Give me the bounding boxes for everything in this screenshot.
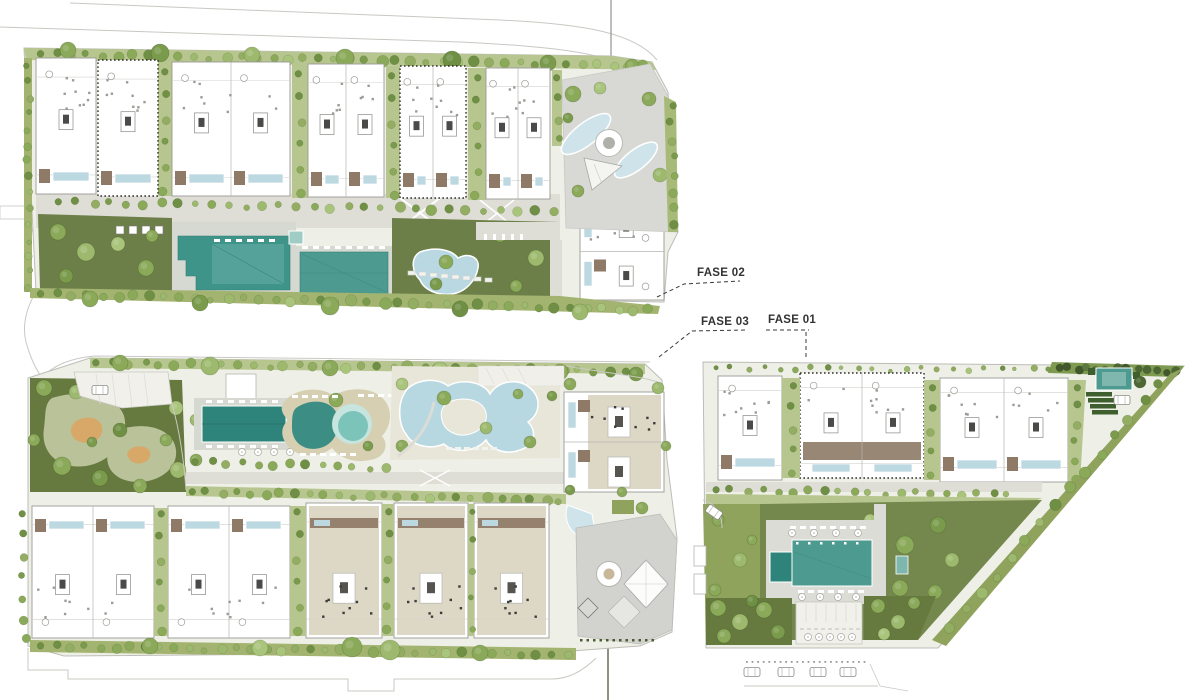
- plan-shape: [441, 399, 486, 435]
- terrace-box: [101, 171, 112, 185]
- furniture-dot: [412, 99, 414, 101]
- tree-icon: [292, 203, 301, 212]
- deck-item: [768, 661, 770, 663]
- tree-icon: [468, 595, 473, 600]
- tree-icon: [54, 289, 62, 297]
- stepping-stone: [430, 273, 437, 277]
- table-icon: [351, 77, 358, 84]
- furniture-dot: [416, 86, 418, 88]
- tree-icon: [788, 470, 795, 477]
- hedge: [1092, 410, 1118, 415]
- stepping-stone: [419, 272, 426, 276]
- tree-icon: [71, 197, 79, 205]
- tree-icon: [1143, 366, 1151, 374]
- tree-icon: [556, 135, 562, 141]
- lounger: [250, 445, 256, 448]
- tree-icon: [208, 200, 216, 208]
- deck-item: [828, 628, 832, 630]
- umbrella-icon: [819, 596, 821, 598]
- stepping-stone: [455, 447, 461, 450]
- table-icon: [178, 619, 185, 626]
- stepping-stone: [463, 276, 470, 280]
- tree-icon: [445, 205, 454, 214]
- tree-icon: [470, 626, 476, 632]
- tree-icon: [301, 295, 309, 303]
- stair-core: [63, 115, 69, 124]
- stair-core: [447, 121, 453, 130]
- tree-icon: [543, 58, 549, 64]
- furniture-dot: [193, 81, 195, 83]
- furniture-dot: [768, 401, 770, 403]
- tree-icon: [611, 62, 619, 70]
- lounger: [228, 400, 234, 403]
- umbrella-icon: [840, 636, 842, 638]
- tree-icon: [926, 490, 934, 498]
- hedge-dot: [593, 639, 596, 642]
- tree-icon: [525, 495, 534, 504]
- deck-item: [802, 661, 804, 663]
- tree-icon: [204, 360, 211, 367]
- tree-icon: [381, 491, 388, 498]
- tree-icon: [899, 539, 906, 546]
- deck-item: [847, 661, 849, 663]
- furniture-dot: [507, 601, 509, 603]
- table-icon: [951, 387, 958, 394]
- tree-icon: [391, 142, 397, 148]
- tree-icon: [290, 489, 300, 499]
- deck-item: [780, 661, 782, 663]
- furniture-dot: [88, 92, 90, 94]
- stepping-stone: [485, 278, 492, 282]
- tree-icon: [398, 442, 403, 447]
- tree-icon: [244, 205, 250, 211]
- stair-core: [414, 121, 420, 130]
- tree-icon: [115, 425, 121, 431]
- tree-icon: [294, 508, 301, 515]
- tree-icon: [341, 363, 351, 373]
- tree-icon: [186, 358, 196, 368]
- tree-icon: [778, 367, 783, 372]
- furniture-dot: [228, 601, 230, 603]
- tree-icon: [439, 393, 445, 399]
- stair-core: [890, 418, 896, 427]
- terrace-box: [721, 455, 732, 469]
- tree-icon: [575, 307, 581, 313]
- tree-icon: [643, 304, 653, 314]
- furniture-dot: [723, 414, 725, 416]
- tree-icon: [515, 391, 519, 395]
- tree-icon: [23, 156, 31, 164]
- deck-item: [763, 661, 765, 663]
- tree-icon: [423, 59, 429, 65]
- furniture-dot: [808, 399, 810, 401]
- furniture-dot: [229, 94, 231, 96]
- tree-icon: [535, 305, 543, 313]
- tree-icon: [565, 651, 573, 659]
- tree-icon: [790, 382, 797, 389]
- furniture-dot: [948, 395, 950, 397]
- furniture-dot: [753, 403, 755, 405]
- tree-icon: [297, 189, 306, 198]
- plunge-pool: [185, 521, 220, 529]
- stair-core: [125, 117, 131, 126]
- terrace-box: [578, 400, 590, 412]
- plunge-pool: [53, 172, 89, 181]
- furniture-dot: [106, 94, 108, 96]
- deck-item: [813, 661, 815, 663]
- furniture-dot: [143, 101, 145, 103]
- plan-shape: [292, 64, 308, 198]
- tree-icon: [295, 70, 302, 77]
- tree-icon: [268, 365, 274, 371]
- tree-icon: [773, 627, 779, 633]
- stair-core: [747, 421, 753, 430]
- tree-icon: [513, 207, 523, 217]
- tree-icon: [209, 457, 217, 465]
- tree-icon: [257, 201, 266, 210]
- tree-icon: [475, 169, 482, 176]
- tree-icon: [1098, 450, 1108, 460]
- table-icon: [872, 382, 879, 389]
- deck-item: [746, 661, 748, 663]
- furniture-dot: [515, 107, 517, 109]
- hedge-dot: [600, 639, 603, 642]
- lounger: [206, 445, 212, 448]
- tree-icon: [122, 201, 130, 209]
- plan-shape: [476, 222, 560, 240]
- tree-icon: [71, 387, 77, 393]
- furniture-dot: [723, 391, 725, 393]
- lounger: [828, 590, 834, 593]
- tree-icon: [747, 367, 753, 373]
- tree-icon: [468, 56, 479, 67]
- furniture-dot: [519, 101, 521, 103]
- furniture-dot: [332, 112, 334, 114]
- lounger: [312, 395, 318, 398]
- tree-icon: [441, 648, 451, 658]
- tree-icon: [1141, 395, 1151, 405]
- stepping-stone: [474, 277, 481, 281]
- stair-core: [615, 466, 623, 477]
- residential-block: [32, 506, 154, 638]
- furniture-dot: [356, 601, 358, 603]
- tree-icon: [186, 645, 193, 652]
- tree-icon: [127, 49, 137, 59]
- furniture-dot: [653, 422, 655, 424]
- terrace-box: [39, 169, 50, 183]
- lounger: [358, 394, 364, 397]
- tree-icon: [483, 492, 494, 503]
- furniture-dot: [875, 398, 877, 400]
- furniture-dot: [322, 616, 324, 618]
- tree-icon: [993, 574, 1001, 582]
- umbrella-icon: [257, 451, 259, 453]
- tree-icon: [320, 462, 326, 468]
- tree-icon: [512, 282, 517, 287]
- tree-icon: [719, 631, 725, 637]
- tree-icon: [1012, 367, 1016, 371]
- furniture-dot: [876, 389, 878, 391]
- tree-icon: [384, 644, 392, 652]
- tree-icon: [928, 448, 934, 454]
- stepping-stone: [473, 447, 479, 450]
- tree-icon: [893, 617, 899, 623]
- furniture-dot: [450, 111, 452, 113]
- plunge-pool: [503, 177, 511, 186]
- tree-icon: [655, 170, 661, 176]
- tree-icon: [426, 205, 437, 216]
- tree-icon: [189, 488, 196, 495]
- tree-icon: [390, 55, 399, 64]
- stair-core: [196, 580, 202, 589]
- furniture-dot: [370, 612, 372, 614]
- furniture-dot: [111, 602, 113, 604]
- residential-block: [940, 378, 1068, 482]
- stepping-stone: [446, 447, 452, 450]
- furniture-dot: [325, 600, 327, 602]
- tree-icon: [19, 616, 28, 625]
- plan-shape: [468, 68, 486, 200]
- tree-icon: [408, 298, 419, 309]
- tree-icon: [385, 508, 392, 515]
- tree-icon: [670, 203, 679, 212]
- plan-shape: [612, 500, 634, 514]
- tree-icon: [1046, 367, 1051, 372]
- tree-icon: [297, 166, 304, 173]
- tree-icon: [307, 645, 315, 653]
- tree-icon: [638, 504, 643, 509]
- furniture-dot: [735, 411, 737, 413]
- tree-icon: [748, 597, 753, 602]
- tree-icon: [162, 138, 168, 144]
- furniture-dot: [64, 93, 66, 95]
- tree-icon: [383, 603, 390, 610]
- tree-icon: [98, 645, 106, 653]
- furniture-dot: [200, 96, 202, 98]
- furniture-dot: [875, 411, 877, 413]
- lounger: [840, 526, 846, 529]
- furniture-dot: [132, 106, 134, 108]
- tree-icon: [293, 627, 302, 636]
- furniture-dot: [450, 599, 452, 601]
- deck-item: [757, 661, 759, 663]
- deck-item: [864, 661, 866, 663]
- tree-icon: [100, 293, 108, 301]
- tree-icon: [383, 577, 389, 583]
- tree-icon: [735, 555, 741, 561]
- umbrella-icon: [857, 532, 859, 534]
- tree-icon: [1153, 367, 1161, 375]
- tree-icon: [63, 45, 69, 51]
- tree-icon: [943, 490, 950, 497]
- furniture-dot: [460, 607, 462, 609]
- tree-icon: [275, 201, 282, 208]
- residential-block: [400, 66, 466, 198]
- tree-icon: [128, 290, 138, 300]
- tree-icon: [311, 203, 318, 210]
- lounger: [379, 246, 385, 249]
- tree-icon: [663, 443, 667, 447]
- tree-icon: [115, 292, 125, 302]
- tree-icon: [135, 481, 141, 487]
- furniture-dot: [646, 417, 648, 419]
- tree-icon: [565, 115, 569, 119]
- stair-core: [828, 418, 834, 427]
- tree-icon: [360, 203, 368, 211]
- tree-icon: [789, 427, 797, 435]
- car-icon: [778, 668, 794, 677]
- tree-icon: [169, 361, 179, 371]
- tree-icon: [240, 294, 247, 301]
- lounger: [206, 400, 212, 403]
- lounger: [346, 246, 352, 249]
- umbrella-icon: [837, 596, 839, 598]
- tree-icon: [19, 510, 26, 517]
- table-icon: [437, 78, 444, 85]
- tree-icon: [223, 53, 233, 63]
- table-icon: [239, 619, 246, 626]
- tree-icon: [487, 649, 496, 658]
- tree-icon: [148, 232, 153, 237]
- residential-block: [168, 506, 290, 638]
- lounger: [790, 526, 796, 529]
- furniture-dot: [131, 95, 133, 97]
- tree-icon: [666, 118, 673, 125]
- tree-icon: [390, 191, 399, 200]
- plan-shape: [604, 569, 615, 580]
- deck-item: [808, 542, 811, 545]
- tree-icon: [972, 489, 979, 496]
- tree-icon: [66, 644, 75, 653]
- furniture-dot: [104, 612, 106, 614]
- tree-icon: [20, 530, 27, 537]
- lounger: [310, 453, 316, 456]
- tree-icon: [480, 208, 486, 214]
- table-icon: [404, 78, 411, 85]
- terrace-box: [1007, 457, 1018, 471]
- tree-icon: [944, 623, 955, 634]
- tree-icon: [255, 643, 261, 649]
- tree-icon: [246, 491, 254, 499]
- tree-icon: [929, 404, 936, 411]
- tree-icon: [365, 443, 369, 447]
- tree-icon: [346, 641, 354, 649]
- plunge-pool: [49, 521, 84, 529]
- tree-icon: [20, 554, 28, 562]
- tree-icon: [475, 143, 481, 149]
- furniture-dot: [339, 109, 341, 111]
- tree-icon: [1074, 384, 1081, 391]
- umbrella-icon: [855, 596, 857, 598]
- furniture-dot: [212, 612, 214, 614]
- furniture-dot: [199, 83, 201, 85]
- lounger: [848, 590, 854, 593]
- car-icon: [92, 386, 108, 395]
- tree-icon: [297, 140, 303, 146]
- tree-icon: [470, 509, 476, 515]
- tree-icon: [157, 605, 164, 612]
- deck-item: [841, 661, 843, 663]
- tree-icon: [763, 365, 767, 369]
- lounger: [258, 239, 264, 242]
- tree-icon: [654, 384, 659, 389]
- tree-icon: [80, 246, 87, 253]
- hedge: [1086, 392, 1112, 397]
- furniture-dot: [614, 232, 616, 234]
- tree-icon: [339, 52, 346, 59]
- terrace-box: [578, 450, 590, 462]
- tree-icon: [350, 495, 356, 501]
- furniture-dot: [533, 100, 535, 102]
- tree-icon: [839, 366, 843, 370]
- tree-icon: [91, 200, 100, 209]
- hedge: [1090, 404, 1116, 409]
- clubhouse: [226, 374, 256, 400]
- tree-icon: [446, 54, 453, 61]
- tree-icon: [619, 489, 623, 493]
- lounger: [239, 445, 245, 448]
- tree-icon: [962, 604, 971, 613]
- tree-icon: [144, 290, 154, 300]
- tree-icon: [25, 222, 31, 228]
- hedge-dot: [587, 639, 590, 642]
- tree-icon: [821, 486, 830, 495]
- deck-item: [785, 661, 787, 663]
- furniture-dot: [634, 426, 636, 428]
- umbrella-icon: [273, 451, 275, 453]
- tree-icon: [18, 572, 24, 578]
- tree-icon: [1019, 535, 1029, 545]
- deck-item: [820, 542, 823, 545]
- lounger: [272, 445, 278, 448]
- lounger: [302, 246, 308, 249]
- hedge-dot: [613, 639, 616, 642]
- stair-core: [257, 580, 263, 589]
- plan-shape: [603, 137, 615, 149]
- tree-icon: [325, 204, 335, 214]
- furniture-dot: [614, 426, 616, 428]
- stepping-stone: [452, 275, 459, 279]
- umbrella-icon: [818, 636, 820, 638]
- lounger: [313, 246, 319, 249]
- plunge-pool: [1021, 460, 1061, 469]
- deck-item: [774, 661, 776, 663]
- furniture-dot: [603, 418, 605, 420]
- tree-icon: [158, 198, 167, 207]
- tree-icon: [735, 617, 741, 623]
- deck-item: [791, 661, 793, 663]
- tree-icon: [898, 489, 907, 498]
- car-icon: [778, 668, 794, 677]
- hedge-dot: [580, 639, 583, 642]
- deck-item: [858, 661, 860, 663]
- furniture-dot: [268, 95, 270, 97]
- furniture-dot: [513, 86, 515, 88]
- furniture-dot: [1056, 402, 1058, 404]
- tree-icon: [505, 649, 511, 655]
- furniture-dot: [1012, 404, 1014, 406]
- tree-icon: [158, 187, 167, 196]
- tree-icon: [92, 359, 99, 366]
- furniture-dot: [887, 409, 889, 411]
- stair-core: [324, 120, 330, 129]
- tree-icon: [549, 393, 553, 397]
- tree-icon: [300, 460, 310, 470]
- tree-icon: [467, 495, 473, 501]
- furniture-dot: [68, 601, 70, 603]
- lounger: [798, 590, 804, 593]
- furniture-dot: [229, 616, 231, 618]
